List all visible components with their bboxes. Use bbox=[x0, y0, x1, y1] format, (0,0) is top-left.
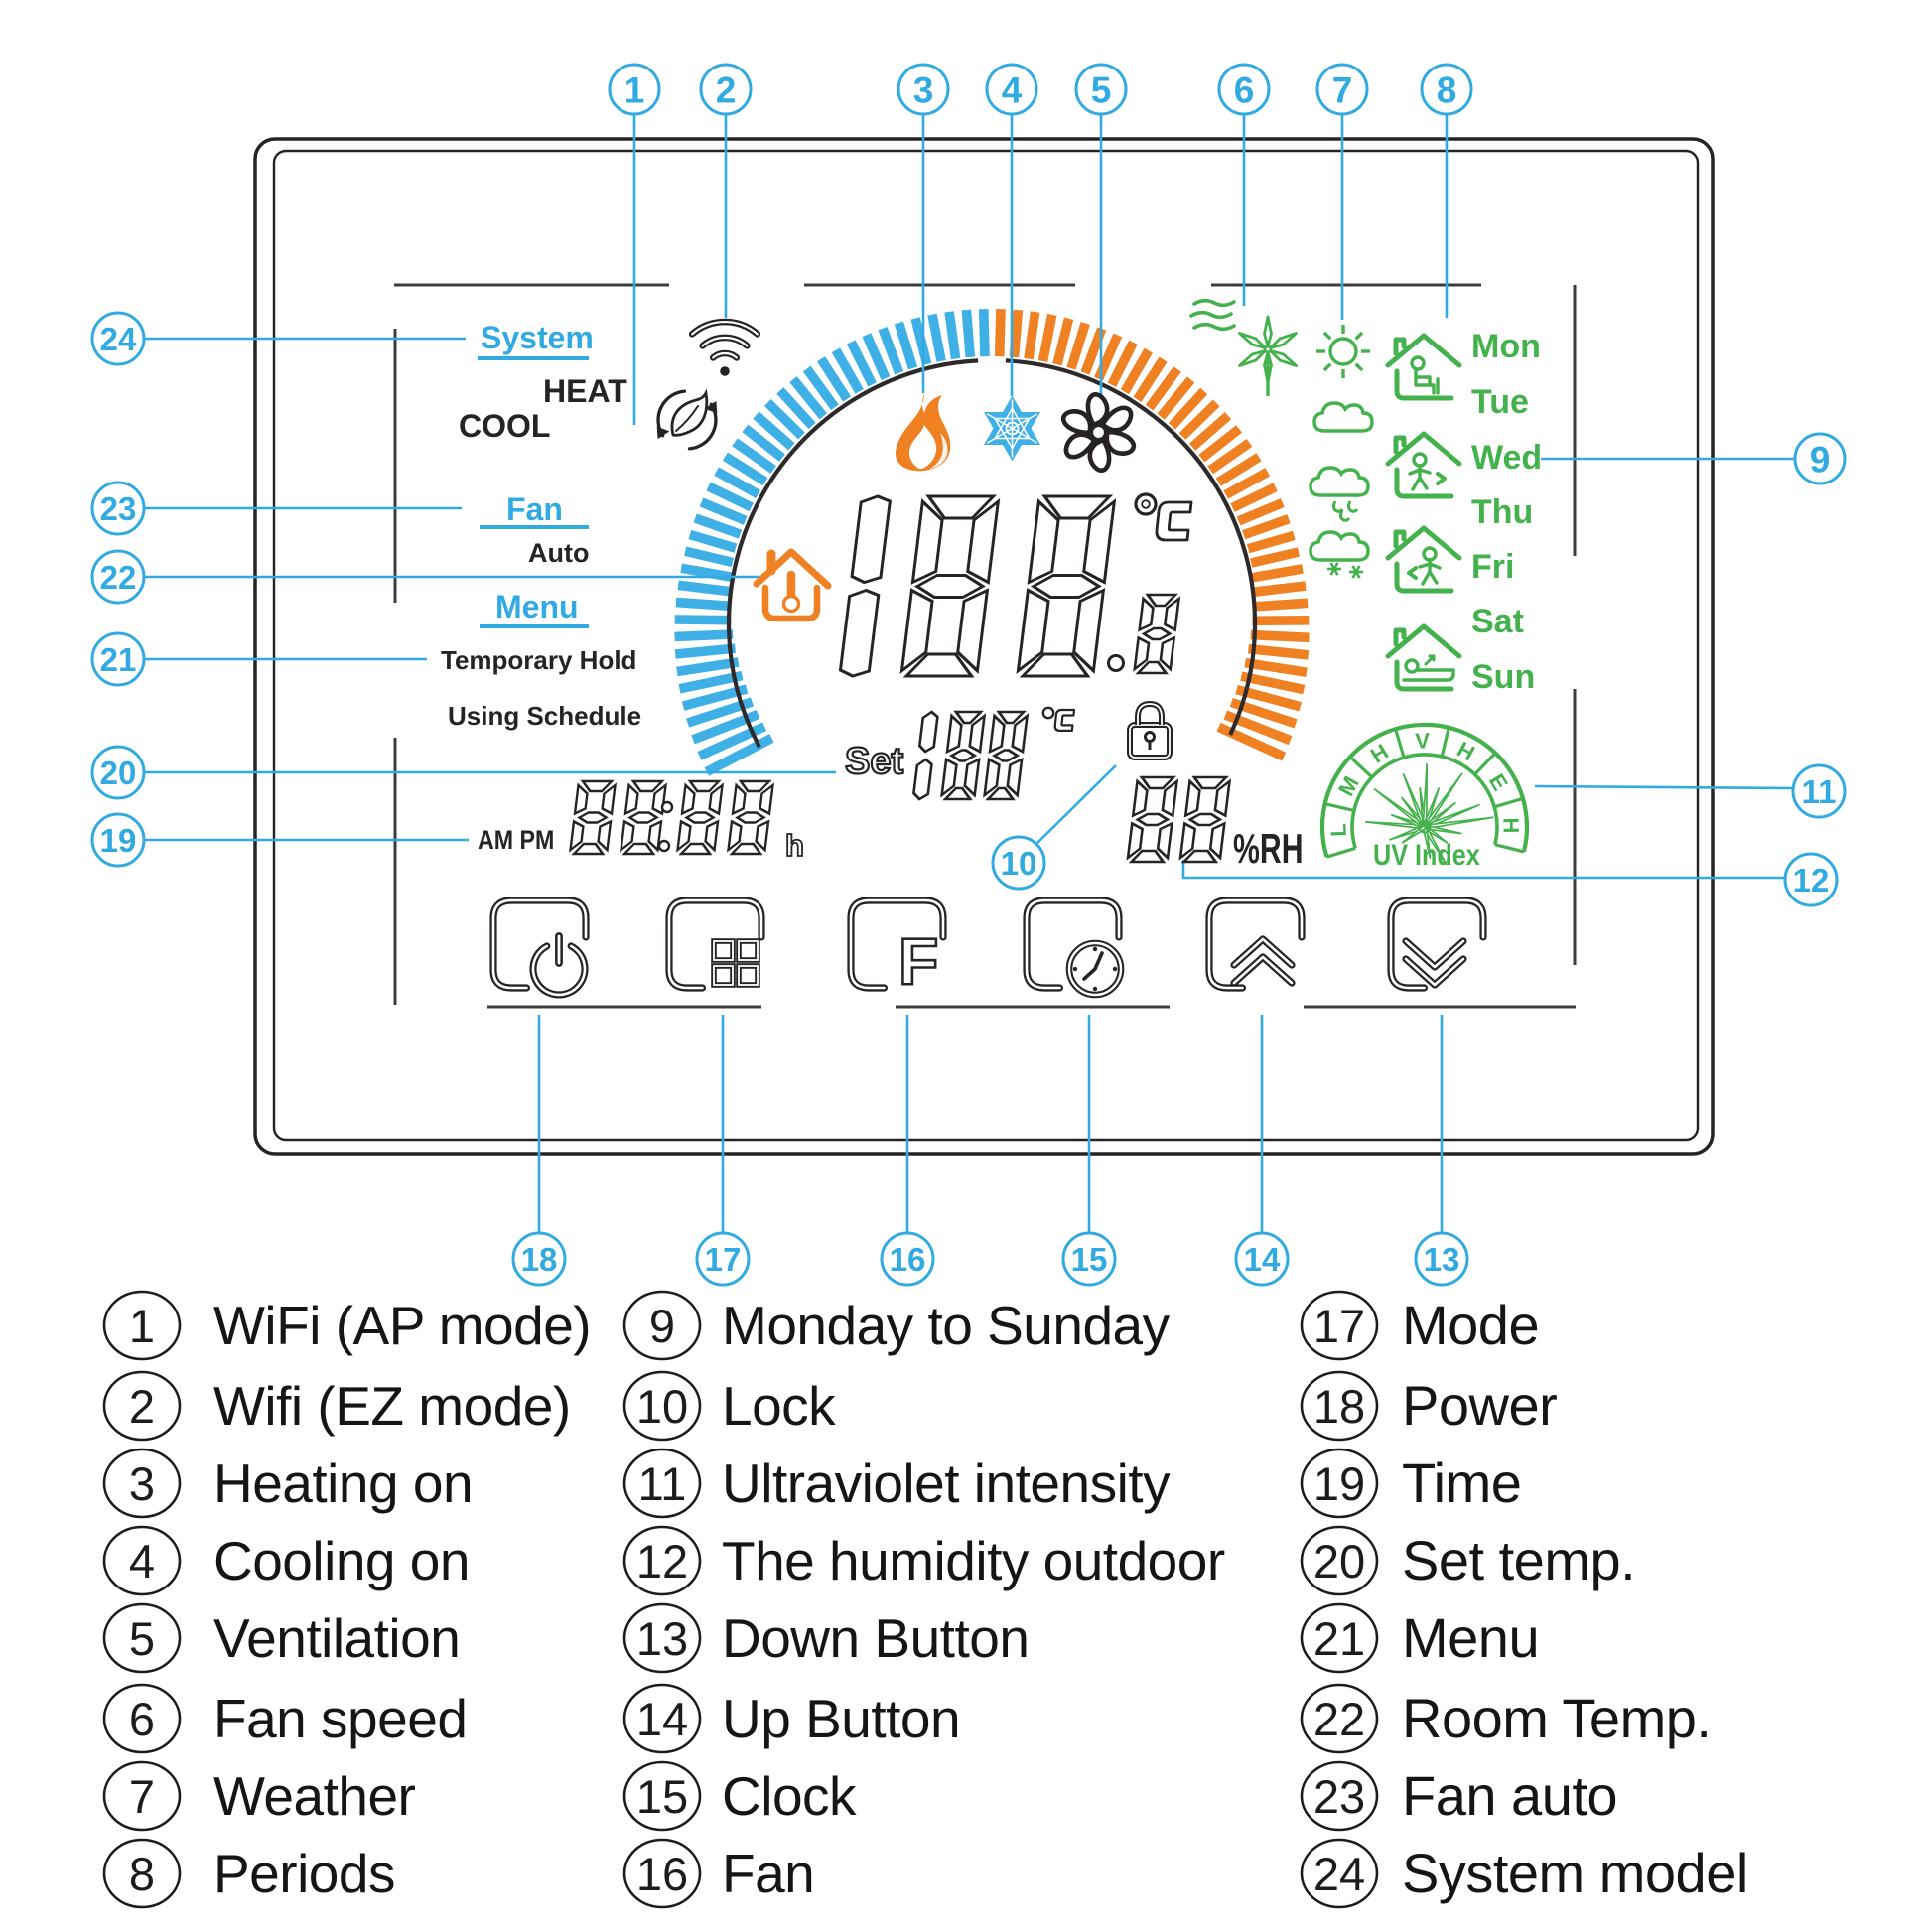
svg-text:18: 18 bbox=[1313, 1380, 1365, 1433]
svg-text:%RH: %RH bbox=[1233, 825, 1304, 872]
svg-text:Heating on: Heating on bbox=[213, 1452, 473, 1514]
svg-text:1: 1 bbox=[624, 69, 645, 110]
svg-text:20: 20 bbox=[100, 755, 137, 791]
svg-text:12: 12 bbox=[636, 1535, 688, 1587]
svg-text:Periods: Periods bbox=[213, 1843, 395, 1904]
svg-text:14: 14 bbox=[1244, 1241, 1281, 1278]
svg-text:Ultraviolet intensity: Ultraviolet intensity bbox=[722, 1452, 1171, 1514]
svg-text:12: 12 bbox=[1793, 862, 1830, 898]
svg-text:9: 9 bbox=[649, 1300, 675, 1352]
svg-text:System: System bbox=[481, 320, 594, 355]
svg-text:Sat: Sat bbox=[1471, 603, 1524, 640]
svg-text:L: L bbox=[1325, 823, 1350, 837]
svg-text:2: 2 bbox=[716, 69, 737, 110]
svg-text:5: 5 bbox=[1091, 69, 1112, 110]
svg-text:Up Button: Up Button bbox=[722, 1688, 960, 1749]
svg-text:24: 24 bbox=[1313, 1848, 1365, 1900]
svg-text:Wifi (EZ mode): Wifi (EZ mode) bbox=[213, 1375, 571, 1437]
svg-text:6: 6 bbox=[1234, 69, 1255, 110]
svg-text:Set temp.: Set temp. bbox=[1402, 1529, 1635, 1591]
svg-text:Time: Time bbox=[1402, 1451, 1521, 1514]
svg-text:7: 7 bbox=[129, 1770, 155, 1823]
svg-text:Fri: Fri bbox=[1471, 548, 1514, 586]
svg-text:19: 19 bbox=[100, 822, 137, 859]
svg-text:Cooling on: Cooling on bbox=[213, 1530, 470, 1591]
svg-text:22: 22 bbox=[100, 559, 137, 596]
svg-text:AM PM: AM PM bbox=[478, 825, 554, 855]
svg-text:7: 7 bbox=[1332, 69, 1353, 110]
svg-text:WiFi (AP mode): WiFi (AP mode) bbox=[213, 1295, 591, 1356]
svg-text:Mon: Mon bbox=[1471, 328, 1541, 365]
svg-text:10: 10 bbox=[636, 1380, 688, 1433]
svg-text:Power: Power bbox=[1402, 1374, 1557, 1437]
svg-text:Fan: Fan bbox=[722, 1843, 814, 1904]
svg-text:F: F bbox=[898, 924, 938, 998]
svg-text:Sun: Sun bbox=[1471, 658, 1535, 696]
svg-text:11: 11 bbox=[1802, 773, 1837, 810]
svg-text:20: 20 bbox=[1313, 1535, 1365, 1587]
svg-text:13: 13 bbox=[1424, 1241, 1460, 1278]
svg-text:21: 21 bbox=[100, 641, 137, 678]
svg-text:17: 17 bbox=[1313, 1300, 1365, 1352]
svg-text:h: h bbox=[785, 828, 804, 863]
svg-text:Clock: Clock bbox=[722, 1765, 857, 1827]
svg-text:Menu: Menu bbox=[495, 589, 579, 624]
svg-text:Auto: Auto bbox=[528, 538, 589, 568]
svg-text:Set: Set bbox=[845, 741, 903, 782]
svg-text:22: 22 bbox=[1313, 1693, 1365, 1745]
svg-text:5: 5 bbox=[129, 1612, 155, 1665]
svg-text:15: 15 bbox=[636, 1770, 688, 1823]
svg-text:Mode: Mode bbox=[1402, 1294, 1539, 1356]
svg-text:Fan auto: Fan auto bbox=[1402, 1764, 1617, 1827]
svg-text:Room Temp.: Room Temp. bbox=[1402, 1687, 1711, 1749]
svg-text:17: 17 bbox=[705, 1241, 742, 1278]
svg-text:Using Schedule: Using Schedule bbox=[448, 701, 641, 731]
svg-text:Tue: Tue bbox=[1471, 383, 1529, 421]
svg-text:24: 24 bbox=[100, 321, 137, 357]
svg-text:Weather: Weather bbox=[213, 1765, 416, 1827]
svg-text:Thu: Thu bbox=[1471, 493, 1533, 531]
svg-text:COOL: COOL bbox=[459, 408, 550, 444]
svg-text:6: 6 bbox=[129, 1693, 155, 1745]
svg-text:The humidity outdoor: The humidity outdoor bbox=[722, 1530, 1225, 1591]
svg-text:System model: System model bbox=[1402, 1842, 1748, 1904]
svg-text:Menu: Menu bbox=[1402, 1606, 1539, 1669]
svg-text:14: 14 bbox=[636, 1693, 688, 1745]
svg-text:10: 10 bbox=[1001, 845, 1037, 882]
svg-text:1: 1 bbox=[129, 1300, 155, 1352]
svg-text:23: 23 bbox=[100, 490, 137, 527]
svg-text:3: 3 bbox=[129, 1457, 155, 1510]
svg-text:Monday to Sunday: Monday to Sunday bbox=[722, 1295, 1171, 1356]
svg-text:Fan speed: Fan speed bbox=[213, 1688, 467, 1749]
svg-text:4: 4 bbox=[1002, 69, 1023, 110]
svg-text:Ventilation: Ventilation bbox=[213, 1607, 460, 1669]
svg-text:3: 3 bbox=[913, 69, 934, 110]
svg-text:11: 11 bbox=[638, 1457, 687, 1510]
svg-text:4: 4 bbox=[129, 1535, 155, 1587]
svg-text:Wed: Wed bbox=[1471, 439, 1542, 477]
svg-text:8: 8 bbox=[129, 1848, 155, 1900]
svg-text:Fan: Fan bbox=[506, 491, 563, 527]
svg-text:13: 13 bbox=[636, 1612, 688, 1665]
svg-text:H: H bbox=[1498, 817, 1523, 833]
svg-text:V: V bbox=[1415, 728, 1431, 754]
svg-text:8: 8 bbox=[1437, 69, 1457, 110]
svg-text:21: 21 bbox=[1313, 1612, 1365, 1665]
svg-text:HEAT: HEAT bbox=[543, 373, 627, 409]
svg-text:9: 9 bbox=[1810, 439, 1831, 480]
svg-text:16: 16 bbox=[890, 1241, 926, 1278]
svg-text:19: 19 bbox=[1313, 1457, 1365, 1510]
svg-text:2: 2 bbox=[129, 1380, 155, 1433]
svg-text:Lock: Lock bbox=[722, 1375, 836, 1437]
svg-text:Temporary Hold: Temporary Hold bbox=[441, 645, 636, 675]
svg-text:15: 15 bbox=[1071, 1241, 1108, 1278]
svg-text:16: 16 bbox=[636, 1848, 688, 1900]
svg-text:18: 18 bbox=[521, 1241, 558, 1278]
svg-text:Down Button: Down Button bbox=[722, 1607, 1029, 1669]
svg-text:23: 23 bbox=[1313, 1770, 1365, 1823]
svg-text:UV Index: UV Index bbox=[1373, 838, 1480, 872]
